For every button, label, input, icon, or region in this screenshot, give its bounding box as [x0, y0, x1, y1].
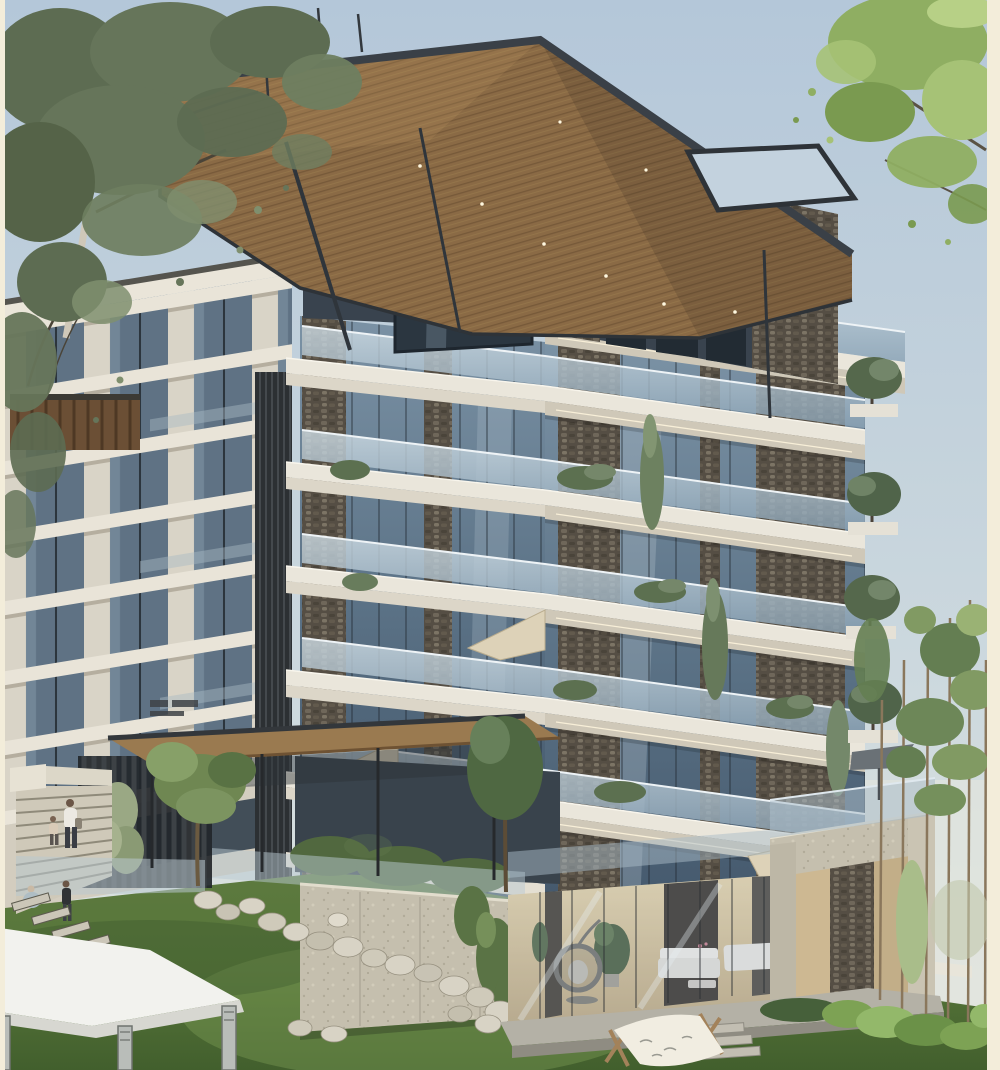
penthouse-window-3: [706, 182, 746, 366]
portal-roof-terrace: [770, 744, 935, 838]
tent-legs: [0, 1006, 236, 1070]
terrace-glass-wall: [508, 868, 868, 1032]
right-tree: [793, 0, 1000, 245]
penthouse: [298, 150, 838, 384]
pine-trees: [854, 600, 998, 1040]
balcony-slab-lowest-left: [286, 852, 545, 899]
glass-reflection-2: [466, 398, 512, 884]
canopy-downlights: [418, 120, 737, 313]
planter-tree-3: [844, 575, 900, 639]
stone-pier-3: [558, 344, 620, 930]
left-wing: [5, 252, 292, 911]
entrance-stairs: [10, 764, 112, 914]
left-tree-trunk: [66, 86, 108, 338]
terrace-steps: [648, 1023, 760, 1063]
fence-hedge: [94, 782, 144, 874]
wing-roof-pergola: [10, 394, 140, 450]
entrance-hedge-row: [290, 834, 510, 894]
entrance-backdrop-glass: [295, 756, 560, 884]
wing-ground-glass-3: [200, 798, 256, 857]
retaining-wall: [300, 884, 526, 1040]
stone-pier-5: [756, 372, 845, 988]
interior-dark-pier-1: [545, 891, 562, 1018]
wing-balcony-rail-2: [140, 536, 292, 573]
canopy-wood-soffit: [160, 40, 852, 338]
balcony-railing: [302, 326, 865, 428]
glass-reflection-1: [598, 414, 662, 905]
terrace-glass-balustrade: [212, 848, 525, 902]
terrace: [500, 744, 972, 1063]
left-tree: [0, 2, 362, 558]
balcony-slab: [286, 670, 865, 776]
planter-tree-1: [846, 357, 902, 417]
right-tree-foliage: [793, 0, 1000, 245]
wing-ground-glass-2: [120, 810, 182, 870]
top-balcony: [380, 258, 905, 394]
balcony-tip-planter-trees: [844, 357, 902, 743]
pedestrian-woman: [64, 799, 82, 848]
egg-chair: [556, 920, 600, 1004]
penthouse-stone-pier-1: [536, 152, 600, 342]
border-left: [0, 0, 5, 1070]
architectural-rendering: [0, 0, 1000, 1070]
planter-tree-4: [848, 680, 902, 743]
tower-glass-facade-right: [545, 342, 865, 992]
wing-ground-glass-1: [20, 827, 80, 887]
terrace-interior: [508, 868, 868, 1032]
wing-parapet: [5, 258, 292, 321]
penthouse-window-1: [606, 164, 646, 350]
left-tree-branches: [28, 92, 258, 400]
roof-canopy: [160, 8, 854, 418]
interior-dark-pier-2: [752, 876, 770, 996]
stepping-stones: [12, 893, 211, 1023]
terrace-deck: [500, 988, 944, 1046]
wing-balcony-rail-1: [150, 396, 292, 431]
stairs-parapet: [10, 764, 46, 792]
canopy-masts: [264, 8, 362, 96]
balcony-railing: [302, 740, 865, 842]
balcony-railing: [302, 534, 865, 636]
umbrella-1: [468, 610, 545, 660]
terrace-bench-slab: [900, 958, 972, 978]
bushes-bottom-right: [760, 998, 998, 1050]
balcony-slab: [286, 358, 865, 464]
rooftop-plants: [298, 200, 574, 262]
umbrella-2: [332, 740, 398, 784]
grounds: [0, 600, 998, 1070]
cypress-trees: [640, 414, 850, 796]
right-tree-branches: [864, 60, 986, 210]
pedestrian-child: [49, 816, 59, 845]
wing-ground-wall: [5, 778, 292, 911]
entrance-tree: [146, 742, 256, 886]
terrace-rail-band: [508, 830, 770, 878]
sun-loungers: [845, 942, 915, 976]
balcony-railing: [302, 430, 865, 532]
penthouse-window-2: [656, 172, 698, 358]
sky-haze-right: [840, 780, 990, 1020]
kid-standing: [62, 881, 72, 922]
border-right: [987, 0, 1000, 1070]
lawn-sun-patch: [180, 940, 660, 1070]
planter-tree-2: [847, 472, 901, 535]
left-tree-foliage: [0, 2, 362, 558]
kid-crouching: [23, 886, 41, 909]
boulders: [194, 891, 515, 1042]
wing-balcony-rail-3: [160, 676, 292, 710]
canopy-fascia: [160, 40, 852, 254]
concrete-portal: [770, 812, 935, 1015]
balcony-slab: [286, 566, 865, 672]
penthouse-stone-pier-2: [752, 196, 838, 384]
lawn-shade: [0, 920, 330, 1000]
lawn: [5, 870, 988, 1070]
balcony-railing: [302, 638, 865, 740]
canopy-skylight-void: [688, 146, 854, 210]
stone-pier-2: [424, 330, 452, 898]
wing-facade-floors: [5, 274, 292, 825]
interior-dark-doorway: [664, 880, 718, 1006]
folded-umbrellas: [332, 610, 818, 882]
tower-mullions-left: [300, 316, 545, 912]
penthouse-corner-glass: [395, 150, 532, 352]
roof-terrace-umbrella: [850, 744, 914, 770]
entrance-canopy-posts: [152, 742, 494, 880]
stone-pier-1: [302, 316, 346, 890]
canopy-struts: [286, 128, 770, 418]
canopy-tent: [0, 928, 244, 1070]
tree-2: [467, 716, 543, 892]
entrance-canopy: [108, 716, 560, 762]
sky: [0, 0, 1000, 1070]
umbrella-3: [748, 840, 818, 882]
tent-roof: [0, 928, 240, 1026]
slat-fence: [78, 756, 212, 888]
building-sign: [150, 700, 198, 716]
wing-roofline: [5, 252, 292, 306]
entrance-canopy-shadow: [150, 742, 520, 792]
slim-plant: [532, 922, 548, 962]
hammock: [606, 1014, 724, 1066]
walkway-glass-balustrade: [16, 856, 205, 896]
rendering-canvas: [0, 0, 1000, 1070]
stone-pier-4: [700, 364, 720, 952]
potted-plant: [594, 922, 630, 987]
balcony-slab: [286, 462, 865, 568]
balcony-planter-hedges: [330, 460, 814, 910]
sofa-set: [658, 942, 775, 988]
louver-column: [255, 372, 292, 880]
entrance-zone: [10, 700, 560, 921]
tower: [286, 258, 905, 992]
tower-mullions-right: [545, 342, 865, 992]
wall-ivy: [454, 886, 526, 1024]
balcony-slab: [286, 772, 865, 878]
tower-glass-facade-left: [300, 316, 545, 912]
